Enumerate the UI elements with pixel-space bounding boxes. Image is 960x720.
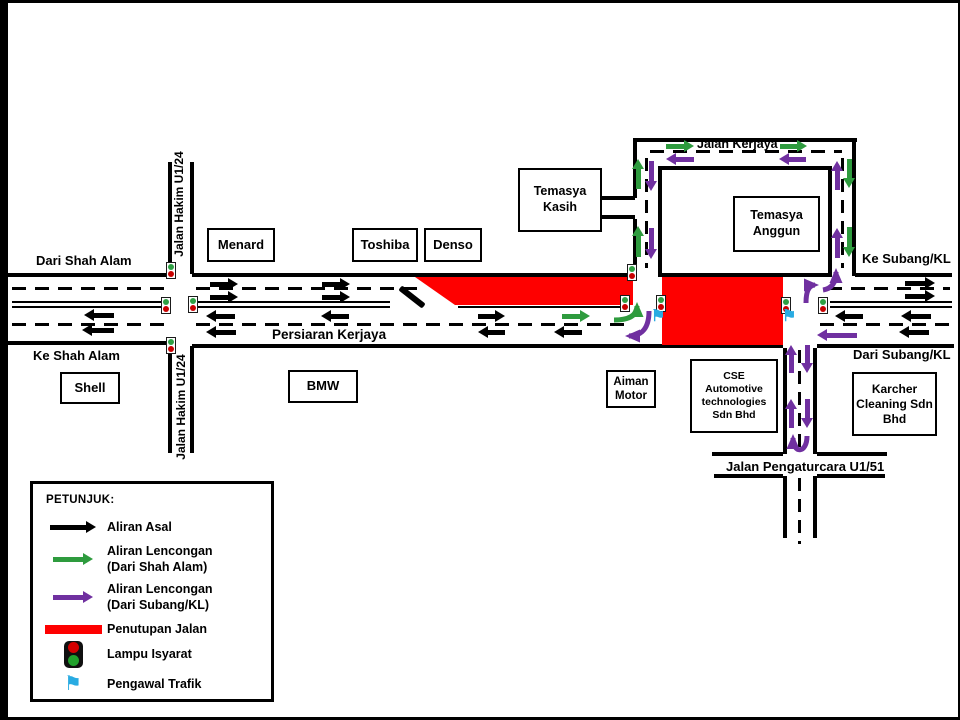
place-box-menard: Menard	[207, 228, 275, 262]
legend-label: Pengawal Trafik	[107, 677, 201, 691]
purple-arrow-icon	[39, 591, 107, 603]
place-box-temasya-kasih: Temasya Kasih	[518, 168, 602, 232]
flow-arrow-icon	[53, 553, 93, 565]
legend-label: (Dari Shah Alam)	[107, 560, 207, 574]
label-persiaran-kerjaya: Persiaran Kerjaya	[272, 327, 386, 342]
place-box-toshiba: Toshiba	[352, 228, 418, 262]
label-jalan-pengaturcara: Jalan Pengaturcara U1/51	[726, 459, 884, 474]
label-jalan-hakim-north: Jalan Hakim U1/24	[172, 144, 186, 264]
legend-label: Aliran Lencongan	[107, 544, 213, 558]
legend: PETUNJUK: Aliran Asal Aliran Lencongan (…	[30, 481, 274, 702]
flow-arrow-icon	[50, 521, 96, 533]
place-box-bmw: BMW	[288, 370, 358, 403]
green-arrow-icon	[39, 553, 107, 565]
legend-item-lampu-isyarat: Lampu Isyarat	[39, 637, 269, 671]
place-box-denso: Denso	[424, 228, 482, 262]
road-closure-icon	[39, 625, 107, 634]
traffic-light-icon	[39, 641, 107, 668]
traffic-controller-flag-icon: ⚑	[39, 674, 107, 694]
legend-label: Aliran Lencongan	[107, 582, 213, 596]
label-ke-shah-alam: Ke Shah Alam	[33, 348, 120, 363]
place-box-cse: CSE Automotive technologies Sdn Bhd	[690, 359, 778, 433]
legend-item-pengawal-trafik: ⚑ Pengawal Trafik	[39, 670, 269, 698]
label-dari-subang: Dari Subang/KL	[853, 347, 951, 362]
legend-label: Lampu Isyarat	[107, 647, 192, 661]
legend-label: Penutupan Jalan	[107, 622, 207, 636]
place-box-aiman-motor: Aiman Motor	[606, 370, 656, 408]
label-jalan-hakim-south: Jalan Hakim U1/24	[174, 347, 188, 467]
place-box-karcher: Karcher Cleaning Sdn Bhd	[852, 372, 937, 436]
black-arrow-icon	[39, 521, 107, 533]
legend-label: Aliran Asal	[107, 520, 172, 534]
diversion-map: ⚑⚑ Dari Shah Alam Ke Shah Alam Ke Subang…	[0, 0, 960, 720]
label-dari-shah-alam: Dari Shah Alam	[36, 253, 132, 268]
legend-item-lencongan-shah-alam: Aliran Lencongan (Dari Shah Alam)	[39, 540, 269, 578]
legend-item-lencongan-subang: Aliran Lencongan (Dari Subang/KL)	[39, 578, 269, 616]
legend-item-aliran-asal: Aliran Asal	[39, 514, 269, 540]
place-box-shell: Shell	[60, 372, 120, 404]
flow-arrow-icon	[53, 591, 93, 603]
label-ke-subang: Ke Subang/KL	[862, 251, 951, 266]
legend-title: PETUNJUK:	[46, 494, 115, 506]
legend-label: (Dari Subang/KL)	[107, 598, 209, 612]
place-box-temasya-anggun: Temasya Anggun	[733, 196, 820, 252]
label-jalan-kerjaya: Jalan Kerjaya	[697, 137, 778, 151]
